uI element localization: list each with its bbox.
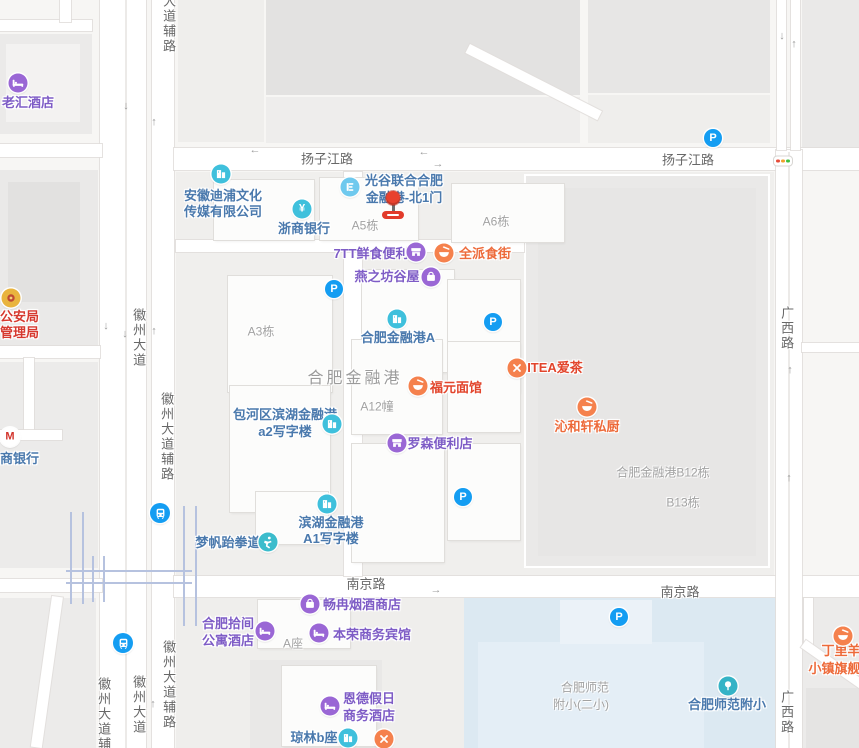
- poi-shijian-hotel-icon[interactable]: [256, 622, 275, 641]
- parking-glyph: P: [489, 317, 496, 328]
- bag-glyph: [304, 598, 317, 611]
- hotel-glyph: [324, 700, 337, 713]
- poi-north-gate-1-icon[interactable]: [341, 178, 360, 197]
- poi-qionglin-b-block-label[interactable]: 琼林b座: [291, 730, 338, 745]
- label-a12: A12幢: [360, 398, 393, 415]
- hotel-glyph: [313, 627, 326, 640]
- poi-fuyuan-noodle-text-line: 福元面馆: [430, 380, 482, 395]
- poi-normal-primary-school-icon[interactable]: [719, 677, 738, 696]
- traffic-direction-arrow-0: ↓: [123, 100, 129, 112]
- poi-zheshang-bank-label[interactable]: 浙商银行: [278, 221, 330, 236]
- huizhou-avenue-south-label: 徽州大道: [131, 675, 145, 735]
- block-north-main-south: [266, 97, 580, 143]
- metro-line-2: [66, 570, 192, 584]
- poi-baohe-a2-office-icon[interactable]: [323, 415, 342, 434]
- building-glyph: [391, 313, 404, 326]
- poi-north-gate-1-text-line: 金融港-北1门: [365, 189, 443, 206]
- poi-dingliyang-flagship-icon[interactable]: [834, 627, 853, 646]
- building-police: [8, 182, 80, 302]
- taekwondo-glyph: [262, 536, 275, 549]
- parking-glyph: P: [615, 612, 622, 623]
- poi-binhu-a1-office-text-line: 滨湖金融港: [298, 515, 363, 531]
- poi-north-gate-1-text-line: 光谷联合合肥: [365, 172, 443, 189]
- bowl-glyph: [438, 247, 451, 260]
- poi-anhui-dipu-media-text-line: 安徽迪浦文化: [184, 188, 262, 204]
- poi-zheshang-bank-icon[interactable]: ¥: [293, 200, 312, 219]
- label-a-zuo: A座: [283, 635, 303, 652]
- poi-dingliyang-flagship-text-line: 小镇旗舰店: [808, 660, 859, 678]
- poi-dingliyang-flagship-text-line: 丁里羊: [808, 642, 859, 660]
- huizhou-frontage-sw-label: 徽州大道辅路: [96, 677, 110, 748]
- huizhou-frontage-mid-label: 徽州大道辅路: [159, 392, 173, 482]
- traffic-direction-arrow-10: ↑: [791, 38, 797, 50]
- cutlery-glyph: [511, 362, 524, 375]
- lane-guangxi: [788, 152, 790, 748]
- map-canvas[interactable]: 扬子江路扬子江路南京路南京路大道辅路徽州大道徽州大道辅路广西路广西路徽州大道徽州…: [0, 0, 859, 748]
- poi-fuyuan-noodle-label[interactable]: 福元面馆: [430, 380, 482, 395]
- bowl-glyph: [581, 401, 594, 414]
- poi-yanzhifang-guwu-text-line: 燕之坊谷屋: [354, 269, 419, 284]
- poi-anhui-dipu-media-label[interactable]: 安徽迪浦文化传媒有限公司: [184, 188, 262, 220]
- traffic-direction-arrow-13: →: [431, 584, 442, 596]
- poi-benrong-hotel-text-line: 本荣商务宾馆: [333, 627, 411, 642]
- poi-benrong-hotel-icon[interactable]: [310, 624, 329, 643]
- traffic-direction-arrow-9: ↓: [779, 30, 785, 42]
- tree-glyph: [722, 680, 735, 693]
- road-nw-vertical: [60, 0, 71, 22]
- poi-qionglin-b-block-text-line: 琼林b座: [291, 730, 338, 745]
- poi-yanzhifang-guwu-icon[interactable]: [422, 268, 441, 287]
- traffic-light-icon: [773, 156, 793, 167]
- poi-binhu-a1-office-icon[interactable]: [318, 495, 337, 514]
- poi-qinhexuan-kitchen-icon[interactable]: [578, 398, 597, 417]
- poi-binhu-a1-office-label[interactable]: 滨湖金融港A1写字楼: [298, 515, 363, 547]
- poi-cmb-bank-text-line: 商银行: [0, 451, 39, 466]
- poi-lawson-store-icon[interactable]: [388, 434, 407, 453]
- block-north-east-south: [588, 95, 770, 143]
- metro-glyph: [117, 637, 130, 650]
- label-school-line2: 附小(二小): [553, 696, 609, 713]
- poi-cmb-bank-icon[interactable]: M: [1, 428, 20, 447]
- parking-icon-0[interactable]: P: [704, 129, 722, 147]
- road-huizhou-frontage: [152, 0, 174, 748]
- block-se-b: [806, 688, 859, 748]
- marker-dot: [386, 191, 400, 205]
- gate-glyph: [344, 181, 357, 194]
- label-a6: A6栋: [483, 213, 510, 230]
- traffic-light-dot: [776, 159, 780, 163]
- road-yangzijiang-west: [0, 144, 102, 157]
- traffic-direction-arrow-7: ↑: [151, 325, 157, 337]
- building-glyph: [342, 732, 355, 745]
- cmb-logo-glyph: M: [5, 432, 14, 443]
- poi-cmb-bank-label[interactable]: 商银行: [0, 451, 39, 466]
- poi-7tt-store-label[interactable]: 7TT鲜食便利: [333, 246, 408, 261]
- poi-normal-primary-school-label[interactable]: 合肥师范附小: [688, 697, 766, 712]
- label-b13: B13栋: [666, 494, 699, 511]
- parking-glyph: P: [330, 284, 337, 295]
- poi-changran-tobacco-label[interactable]: 畅冉烟酒商店: [323, 597, 401, 612]
- traffic-direction-arrow-8: ↑: [150, 698, 156, 710]
- storefront-glyph: [391, 437, 404, 450]
- poi-quanpai-food-street-icon[interactable]: [435, 244, 454, 263]
- poi-ende-holiday-hotel-text-line: 恩德假日: [343, 690, 395, 707]
- huizhou-frontage-top-label: 大道辅路: [161, 0, 175, 54]
- label-a5: A5栋: [352, 217, 379, 234]
- poi-fuyuan-noodle-icon[interactable]: [409, 377, 428, 396]
- poi-laohui-hotel-label[interactable]: 老汇酒店: [2, 95, 54, 110]
- poi-changran-tobacco-text-line: 畅冉烟酒商店: [323, 597, 401, 612]
- poi-7tt-store-icon[interactable]: [407, 243, 426, 262]
- road-nanjing: [174, 576, 859, 597]
- label-b12: 合肥金融港B12栋: [616, 464, 709, 481]
- traffic-direction-arrow-5: ↓: [103, 320, 109, 332]
- building-glyph: [321, 498, 334, 511]
- yangzijiang-road-east-label: 扬子江路: [662, 150, 714, 169]
- traffic-direction-arrow-2: ←: [250, 144, 261, 156]
- poi-qinhexuan-kitchen-text-line: 沁和轩私厨: [554, 419, 619, 434]
- poi-police-bureau-text-line: 公安局: [0, 309, 39, 325]
- bowl-glyph: [837, 630, 850, 643]
- traffic-direction-arrow-11: ↑: [787, 364, 793, 376]
- block-north-east: [588, 0, 770, 93]
- poi-shijian-hotel-text-line: 合肥拾间: [202, 615, 254, 632]
- guangxi-road-south-label: 广西路: [779, 690, 793, 735]
- nanjing-road-west-label: 南京路: [346, 574, 385, 593]
- cutlery-glyph: [378, 733, 391, 746]
- poi-police-bureau-text-line: 管理局: [0, 325, 39, 341]
- traffic-direction-arrow-3: ←: [419, 146, 430, 158]
- block-ne-corner: [802, 0, 859, 148]
- poi-changran-tobacco-icon[interactable]: [301, 595, 320, 614]
- poi-lawson-store-label[interactable]: 罗森便利店: [407, 436, 472, 451]
- poi-ende-holiday-hotel-icon[interactable]: [321, 697, 340, 716]
- poi-mengfan-taekwondo-icon[interactable]: [259, 533, 278, 552]
- poi-financial-port-a-label[interactable]: 合肥金融港A: [361, 330, 435, 345]
- poi-anhui-dipu-media-text-line: 传媒有限公司: [184, 204, 262, 220]
- guangxi-road-north-label: 广西路: [779, 306, 793, 351]
- poi-dingliyang-flagship-label[interactable]: 丁里羊小镇旗舰店: [808, 642, 859, 678]
- huizhou-frontage-s-label: 徽州大道辅路: [161, 640, 175, 730]
- poi-financial-port-a-icon[interactable]: [388, 310, 407, 329]
- police-badge-glyph: [5, 292, 18, 305]
- poi-shijian-hotel-text-line: 公寓酒店: [202, 632, 254, 649]
- storefront-glyph: [410, 246, 423, 259]
- road-east-horizontal: [802, 343, 859, 352]
- poi-lawson-store-text-line: 罗森便利店: [407, 436, 472, 451]
- poi-police-bureau-label[interactable]: 公安局管理局: [0, 309, 39, 341]
- bowl-glyph: [412, 380, 425, 393]
- traffic-light-dot: [786, 159, 790, 163]
- parking-icon-1[interactable]: P: [325, 280, 343, 298]
- poi-itea-tea-label[interactable]: ITEA爱茶: [527, 360, 583, 375]
- poi-restaurant-south-icon[interactable]: [375, 730, 394, 748]
- poi-police-bureau-icon[interactable]: [2, 289, 21, 308]
- poi-qionglin-b-block-icon[interactable]: [339, 729, 358, 748]
- metro-station-icon-1[interactable]: [113, 633, 133, 653]
- poi-normal-primary-school-text-line: 合肥师范附小: [688, 697, 766, 712]
- metro-station-icon-0[interactable]: [150, 503, 170, 523]
- yangzijiang-road-west-label: 扬子江路: [301, 149, 353, 168]
- poi-north-gate-1-label[interactable]: 光谷联合合肥金融港-北1门: [365, 172, 443, 206]
- poi-yanzhifang-guwu-label[interactable]: 燕之坊谷屋: [354, 269, 419, 284]
- poi-mengfan-taekwondo-label[interactable]: 梦帆跆拳道: [195, 535, 260, 550]
- poi-baohe-a2-office-text-line: a2写字楼: [233, 423, 337, 440]
- huizhou-avenue-mid-label: 徽州大道: [131, 308, 145, 368]
- poi-binhu-a1-office-text-line: A1写字楼: [298, 531, 363, 547]
- yuan-glyph: ¥: [299, 204, 305, 215]
- metro-line-1: [183, 506, 197, 626]
- poi-laohui-hotel-text-line: 老汇酒店: [2, 95, 54, 110]
- poi-anhui-dipu-media-icon[interactable]: [212, 165, 231, 184]
- parking-icon-3[interactable]: P: [454, 488, 472, 506]
- hotel-glyph: [259, 625, 272, 638]
- poi-zheshang-bank-text-line: 浙商银行: [278, 221, 330, 236]
- nanjing-road-east-label: 南京路: [660, 582, 699, 601]
- road-guangxi-north-1: [777, 0, 786, 150]
- poi-quanpai-food-street-text-line: 全派食街: [459, 246, 511, 261]
- marker-base: [382, 211, 404, 219]
- label-a3: A3栋: [248, 323, 275, 340]
- parking-icon-4[interactable]: P: [610, 608, 628, 626]
- road-yangzijiang: [174, 148, 859, 170]
- poi-7tt-store-text-line: 7TT鲜食便利: [333, 246, 408, 261]
- road-nw-horizontal: [0, 20, 92, 31]
- road-west-h1: [0, 346, 100, 358]
- building-glyph: [326, 418, 339, 431]
- poi-baohe-a2-office-label[interactable]: 包河区滨湖金融港a2写字楼: [233, 406, 337, 440]
- poi-shijian-hotel-label[interactable]: 合肥拾间公寓酒店: [202, 615, 254, 649]
- poi-baohe-a2-office-text-line: 包河区滨湖金融港: [233, 406, 337, 423]
- road-guangxi-north-2: [791, 0, 800, 150]
- traffic-direction-arrow-6: ↓: [122, 328, 128, 340]
- poi-laohui-hotel-icon[interactable]: [9, 74, 28, 93]
- metro-line-4: [92, 556, 105, 602]
- poi-mengfan-taekwondo-text-line: 梦帆跆拳道: [195, 535, 260, 550]
- traffic-direction-arrow-12: ↑: [786, 472, 792, 484]
- poi-financial-port-a-text-line: 合肥金融港A: [361, 330, 435, 345]
- label-school-line1: 合肥师范: [561, 679, 609, 696]
- hotel-glyph: [12, 77, 25, 90]
- poi-ende-holiday-hotel-text-line: 商务酒店: [343, 707, 395, 724]
- poi-qinhexuan-kitchen-label[interactable]: 沁和轩私厨: [554, 419, 619, 434]
- poi-itea-tea-text-line: ITEA爱茶: [527, 360, 583, 375]
- road-west-v1: [24, 358, 34, 434]
- traffic-direction-arrow-4: →: [433, 158, 444, 170]
- label-hefei-financial-port: 合肥金融港: [307, 364, 402, 388]
- metro-glyph: [154, 507, 167, 520]
- poi-quanpai-food-street-label[interactable]: 全派食街: [459, 246, 511, 261]
- building-glyph: [215, 168, 228, 181]
- parking-icon-2[interactable]: P: [484, 313, 502, 331]
- parking-glyph: P: [459, 492, 466, 503]
- poi-benrong-hotel-label[interactable]: 本荣商务宾馆: [333, 627, 411, 642]
- building-c3: [352, 444, 444, 562]
- metro-line-3: [70, 512, 84, 604]
- traffic-light-dot: [781, 159, 785, 163]
- school-building-2: [560, 600, 652, 644]
- block-north-west: [178, 0, 264, 142]
- traffic-direction-arrow-1: ↑: [151, 116, 157, 128]
- parking-glyph: P: [709, 133, 716, 144]
- bag-glyph: [425, 271, 438, 284]
- poi-itea-tea-icon[interactable]: [508, 359, 527, 378]
- poi-ende-holiday-hotel-label[interactable]: 恩德假日商务酒店: [343, 690, 395, 724]
